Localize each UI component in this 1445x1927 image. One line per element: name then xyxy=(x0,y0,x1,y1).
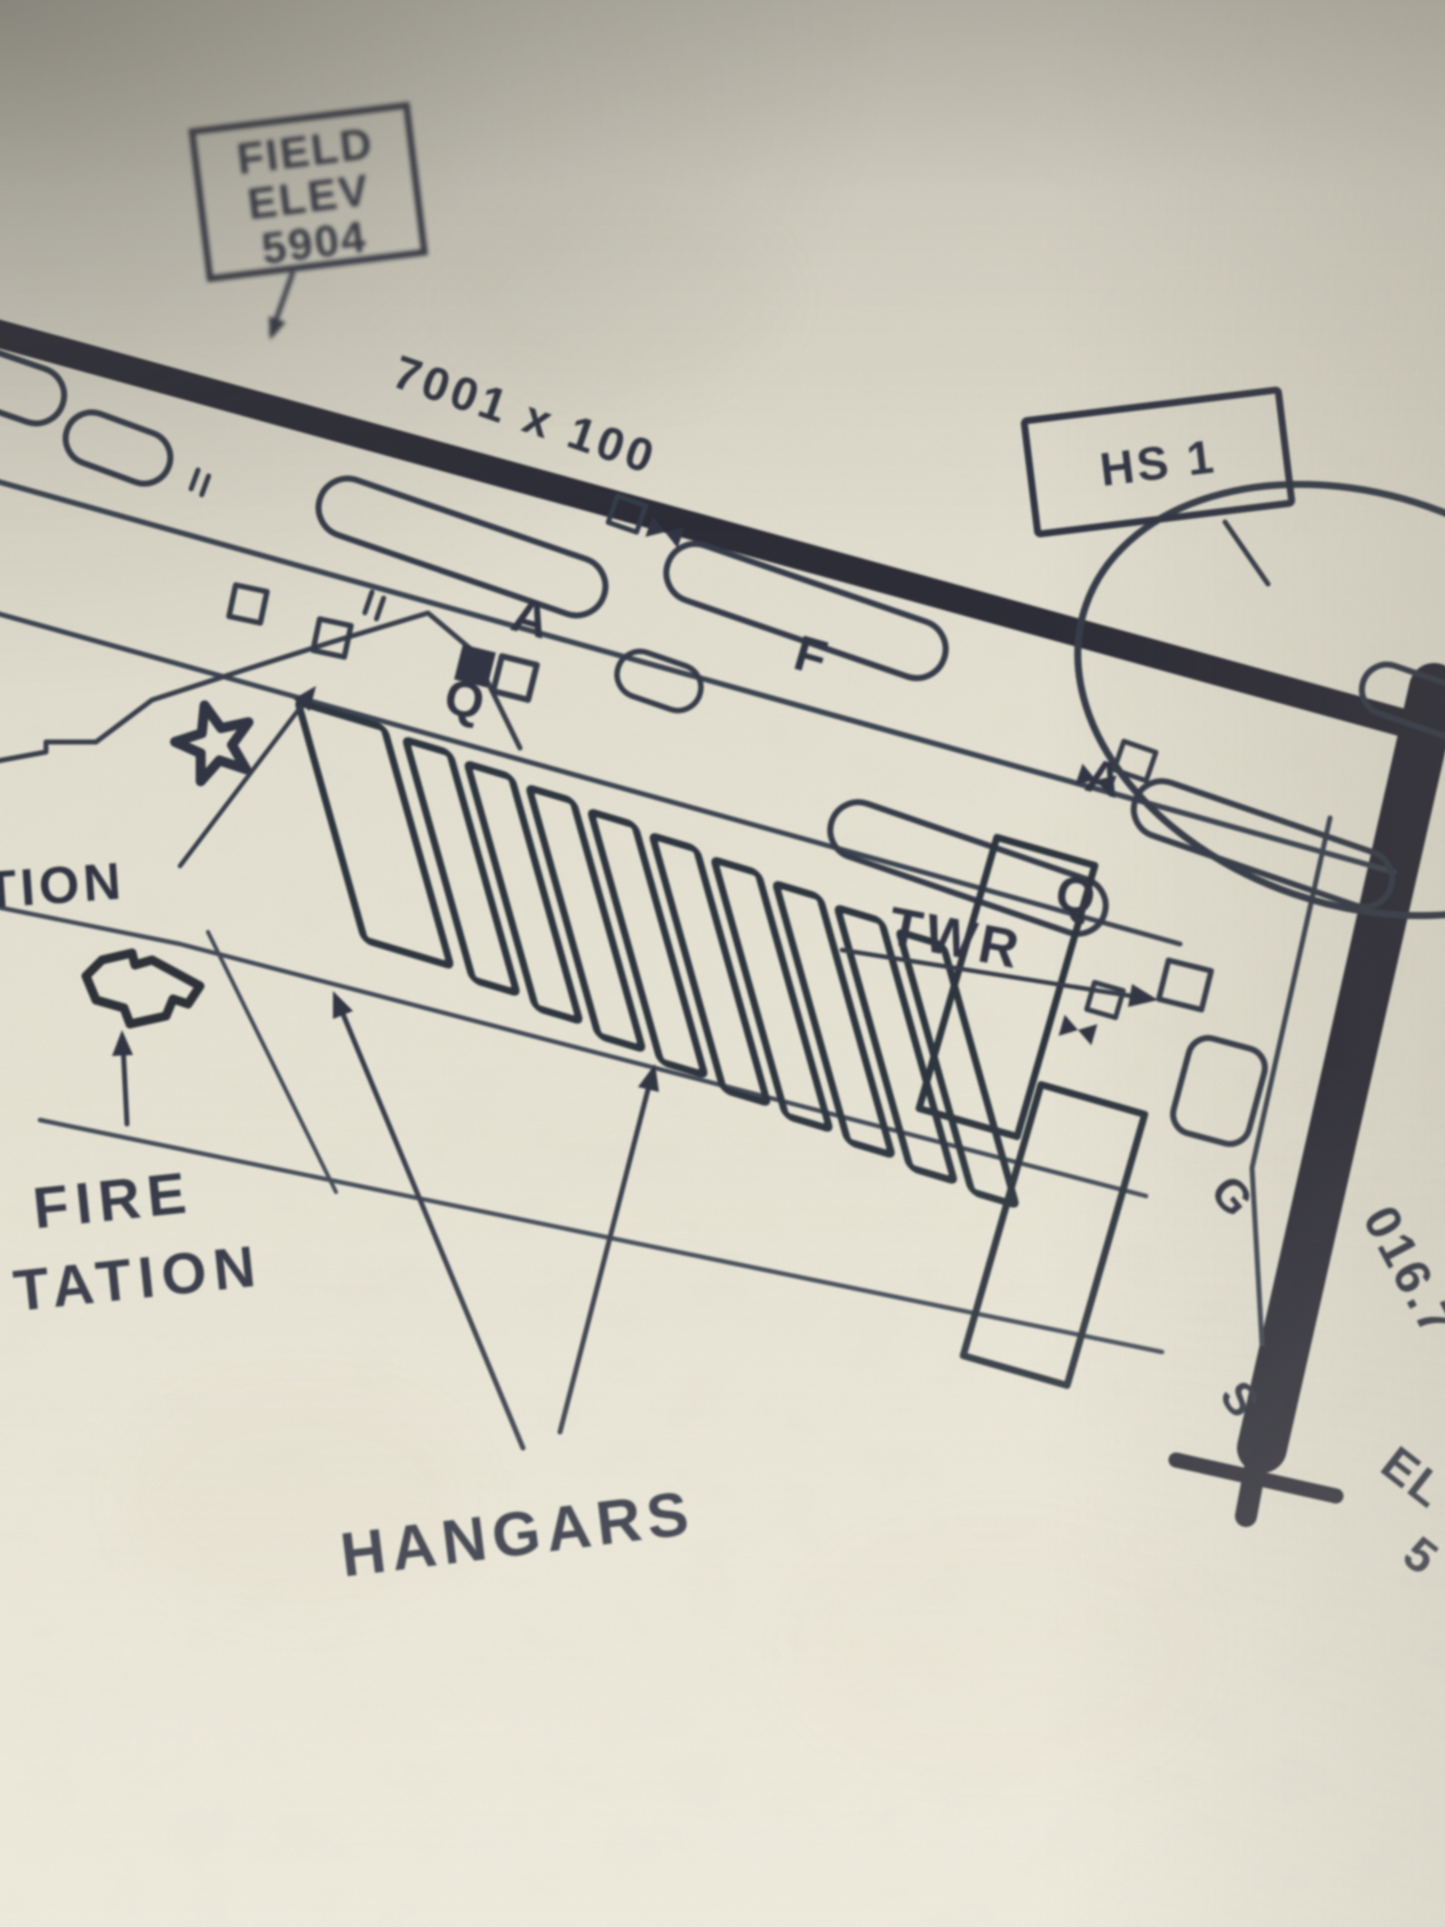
light-bottom xyxy=(0,0,1445,1927)
airport-diagram: HS 1 7001 x 100 A Q F A Q TWR G S TION F… xyxy=(0,0,1445,1927)
airport-diagram-photo: HS 1 7001 x 100 A Q F A Q TWR G S TION F… xyxy=(0,0,1445,1927)
